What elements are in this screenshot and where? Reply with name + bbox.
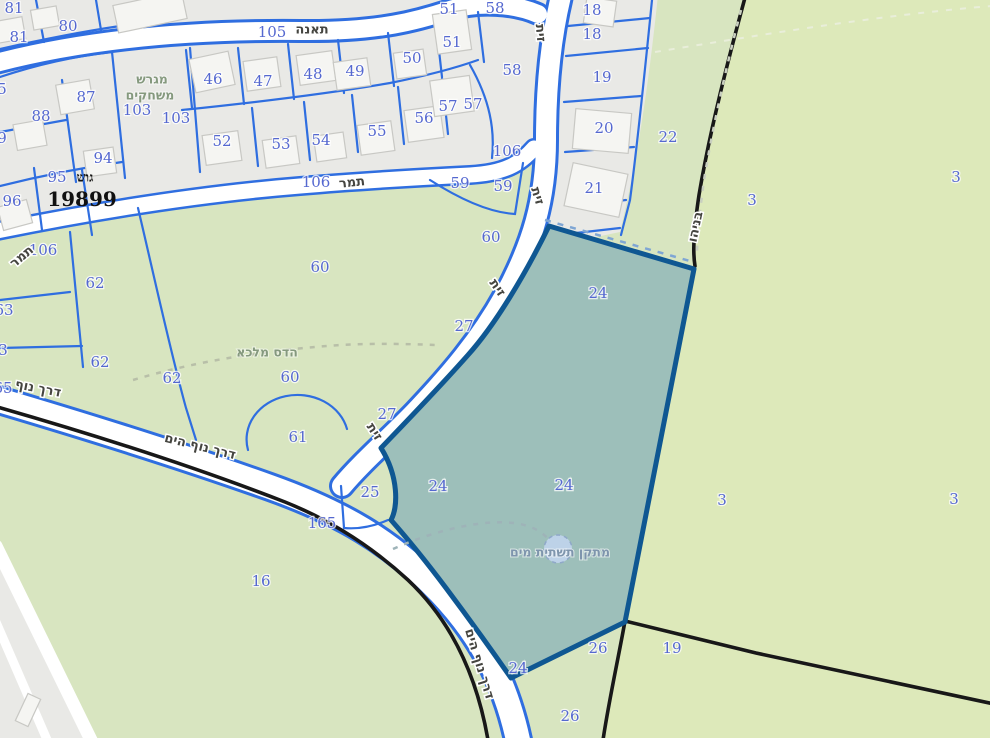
map-label: 60: [310, 258, 329, 276]
map-label: 19: [592, 68, 611, 86]
map-label: 62: [90, 353, 109, 371]
map-label: 51: [439, 0, 458, 18]
map-label: מגרש: [136, 72, 168, 87]
map-label: 96: [2, 192, 21, 210]
map-label: 47: [253, 72, 272, 90]
map-label: 61: [288, 428, 307, 446]
map-label: 62: [162, 369, 181, 387]
map-label: 88: [31, 107, 50, 125]
map-label: 65: [0, 379, 13, 397]
map-label: 19: [662, 639, 681, 657]
map-label: 106: [302, 173, 331, 191]
map-label: 59: [493, 177, 512, 195]
map-label: 3: [951, 168, 961, 186]
map-label: 3: [0, 341, 8, 359]
map-label: 62: [85, 274, 104, 292]
map-label: 50: [402, 49, 421, 67]
map-label: 103: [123, 101, 152, 119]
map-label: 24: [508, 659, 527, 677]
map-label: 21: [584, 179, 603, 197]
map-label: 59: [450, 174, 469, 192]
map-label: 24: [588, 284, 607, 302]
map-label: מתקן תשתית מים: [510, 545, 610, 560]
map-label: משחקים: [126, 88, 175, 103]
map-label: 18: [582, 25, 601, 43]
map-label: 16: [251, 572, 270, 590]
map-label: 20: [594, 119, 613, 137]
map-label: 3: [717, 491, 727, 509]
map-label: הדס מלכא: [236, 345, 298, 360]
map-label: 5: [0, 80, 7, 98]
map-label: 57: [438, 97, 457, 115]
map-label: 80: [58, 17, 77, 35]
map-label: 3: [747, 191, 757, 209]
map-label: 19899: [47, 187, 117, 211]
map-label: 81: [9, 28, 28, 46]
map-label: 49: [345, 62, 364, 80]
map-label: 52: [212, 132, 231, 150]
map-label: 60: [280, 368, 299, 386]
map-label: 53: [271, 135, 290, 153]
street-name-label: תמר: [338, 174, 366, 192]
map-label: 94: [93, 149, 112, 167]
map-label: 25: [360, 483, 379, 501]
street-name-label: תאנה: [295, 23, 328, 38]
map-label: 24: [554, 476, 573, 494]
map-label: 58: [485, 0, 504, 17]
map-label: 26: [560, 707, 579, 725]
map-label: 87: [76, 88, 95, 106]
map-label: 165: [308, 514, 337, 532]
map-label: 3: [949, 490, 959, 508]
map-label: 9: [0, 129, 7, 147]
map-label: 54: [311, 131, 330, 149]
map-label: 63: [0, 301, 14, 319]
map-label: 56: [414, 109, 433, 127]
map-label: 105: [258, 23, 287, 41]
map-label: 55: [367, 122, 386, 140]
street-name-label: זית: [532, 23, 549, 42]
map-label: 95: [47, 168, 66, 186]
map-label: 58: [502, 61, 521, 79]
map-label: גוש: [77, 171, 94, 186]
map-label: 51: [442, 33, 461, 51]
map-label: 106: [493, 142, 522, 160]
map-viewport[interactable]: 8180815910546474849505151585857575655545…: [0, 0, 990, 738]
map-canvas[interactable]: 8180815910546474849505151585857575655545…: [0, 0, 990, 738]
map-label: 60: [481, 228, 500, 246]
map-label: 81: [4, 0, 23, 17]
map-label: 26: [588, 639, 607, 657]
map-label: 46: [203, 70, 222, 88]
map-label: 48: [303, 65, 322, 83]
map-label: 27: [454, 317, 473, 335]
map-label: 22: [658, 128, 677, 146]
map-label: 27: [377, 405, 396, 423]
map-label: 103: [162, 109, 191, 127]
map-label: 18: [582, 1, 601, 19]
map-label: 24: [428, 477, 447, 495]
map-label: 57: [463, 95, 482, 113]
